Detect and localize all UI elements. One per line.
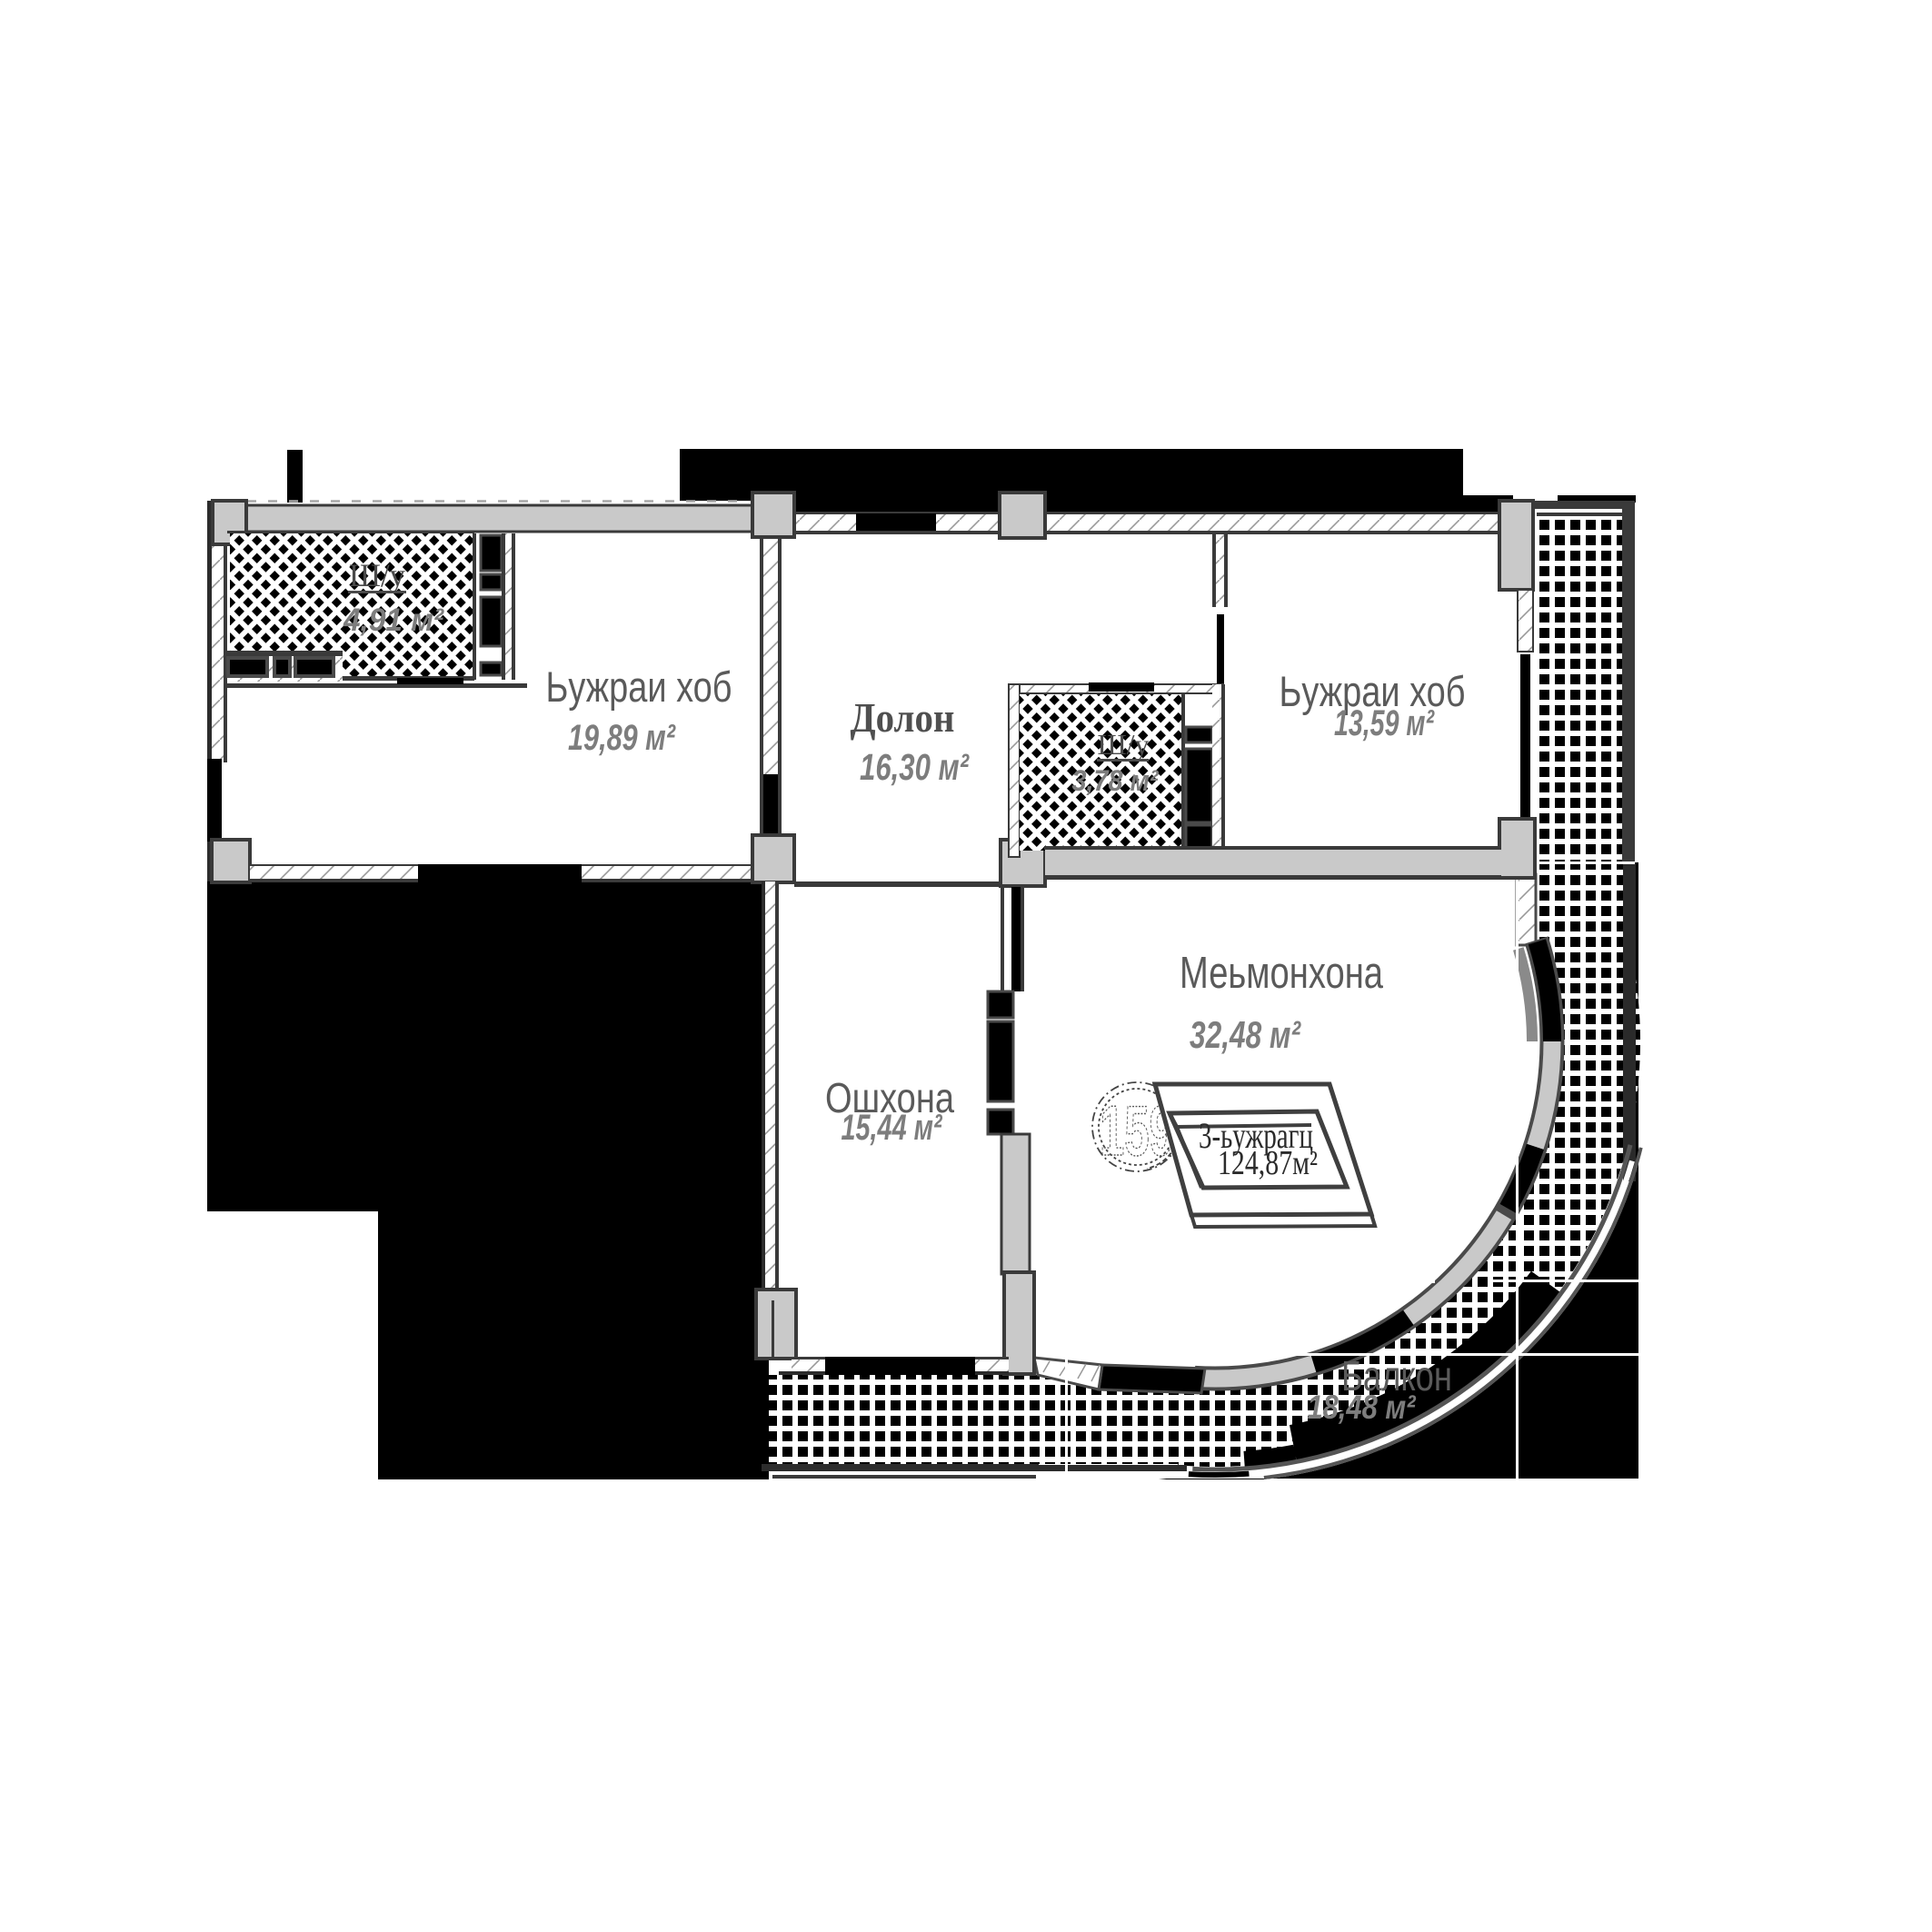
svg-text:16,30 м²: 16,30 м² (860, 746, 970, 788)
svg-text:18,48 м²: 18,48 м² (1308, 1389, 1417, 1426)
svg-text:13,59 м²: 13,59 м² (1334, 703, 1435, 743)
svg-text:Долон: Долон (851, 695, 955, 741)
svg-text:32,48 м²: 32,48 м² (1190, 1013, 1301, 1056)
svg-text:15,44 м²: 15,44 м² (842, 1108, 943, 1148)
svg-text:124,87м²: 124,87м² (1218, 1144, 1318, 1182)
svg-text:4,91 м²: 4,91 м² (343, 603, 444, 638)
svg-text:3,78 м²: 3,78 м² (1072, 764, 1160, 797)
svg-text:19,89 м²: 19,89 м² (568, 718, 676, 758)
svg-text:Меьмонхона: Меьмонхона (1180, 949, 1384, 998)
svg-text:Ш/у: Ш/у (349, 557, 405, 593)
svg-text:Ш/у: Ш/у (1098, 728, 1150, 761)
svg-text:Ьужраи хоб: Ьужраи хоб (546, 662, 732, 711)
